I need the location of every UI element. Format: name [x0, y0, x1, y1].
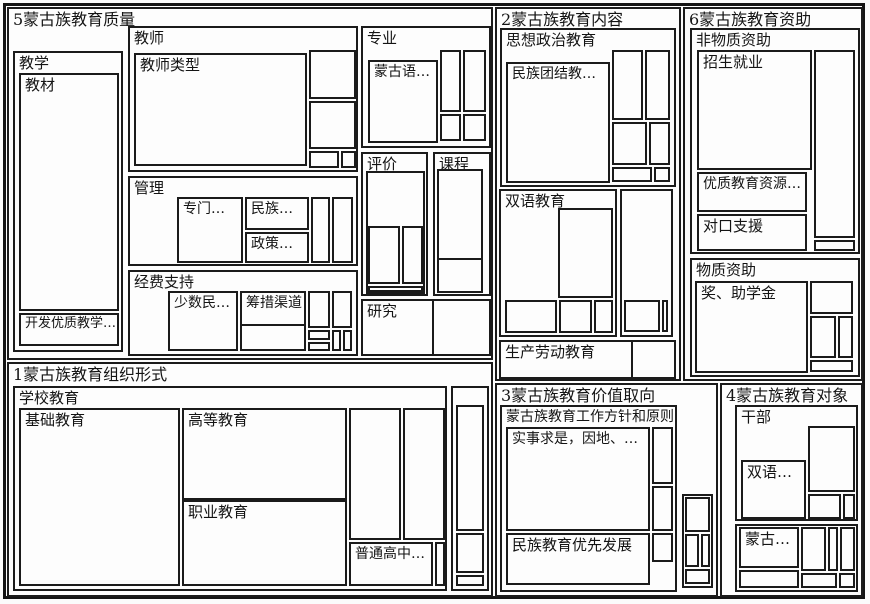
node-scholarship-label: 奖、助学金 — [697, 283, 806, 304]
treemap-cell — [456, 533, 484, 573]
region-6-education-aid: 6蒙古族教育资助 非物质资助 招生就业 优质教育资源… 对口支援 物质资助 奖、… — [683, 7, 863, 381]
treemap-cell — [308, 342, 330, 351]
node-ethnic-unity-label: 民族团结教… — [508, 64, 608, 83]
divider — [242, 324, 304, 326]
treemap-cell — [808, 494, 841, 519]
node-teacher: 教师 教师类型 — [128, 26, 358, 172]
node-curriculum: 课程 — [433, 152, 491, 296]
node-quality-resources-label: 优质教育资源… — [699, 174, 805, 193]
node-funding: 经费支持 少数民… 筹措渠道 — [128, 270, 358, 356]
treemap-cell — [343, 330, 352, 351]
node-policy: 政策… — [245, 232, 309, 263]
treemap-cell — [463, 114, 486, 141]
node-ideology-education: 思想政治教育 民族团结教… — [500, 28, 676, 187]
node-funding-channel-label: 筹措渠道 — [242, 293, 304, 312]
treemap-cell — [463, 50, 486, 112]
node-work-principles: 蒙古族教育工作方针和原则 实事求是，因地、… 民族教育优先发展 — [500, 405, 677, 592]
treemap-cell — [309, 101, 356, 149]
treemap-cell — [558, 208, 613, 298]
node-bilingual-education: 双语教育 — [499, 189, 617, 337]
divider — [439, 258, 481, 260]
node-basic-education-label: 基础教育 — [21, 410, 178, 431]
node-teaching: 教学 教材 开发优质教学… — [13, 51, 123, 352]
treemap-cell — [311, 197, 330, 263]
node-ethnic: 民族… — [245, 197, 309, 230]
node-policy-label: 政策… — [247, 234, 307, 253]
node-labor-education: 生产劳动教育 — [499, 340, 676, 379]
node-develop-teaching-label: 开发优质教学… — [21, 315, 117, 333]
node-higher-education: 高等教育 — [182, 408, 347, 500]
treemap-cell — [652, 533, 673, 562]
node-higher-education-label: 高等教育 — [184, 410, 345, 431]
treemap-figure: 5蒙古族教育质量 教学 教材 开发优质教学… 教师 教师类型 管理 — [0, 0, 870, 604]
node-major-label: 专业 — [363, 28, 489, 49]
node-cadre: 干部 双语… — [735, 405, 858, 521]
node-enrollment-employment-label: 招生就业 — [699, 52, 810, 73]
node-seek-truth: 实事求是，因地、… — [506, 427, 650, 531]
node-teacher-label: 教师 — [130, 28, 356, 49]
treemap-cell — [366, 171, 425, 294]
treemap-cell — [308, 291, 330, 328]
node-mongolian-label: 蒙古… — [741, 529, 797, 550]
node-mongolian-language-label: 蒙古语… — [370, 62, 436, 81]
treemap-cell — [810, 360, 853, 372]
treemap-cell — [685, 534, 699, 567]
node-priority-development: 民族教育优先发展 — [506, 533, 650, 585]
treemap-cell — [505, 300, 557, 333]
node-funding-label: 经费支持 — [130, 272, 356, 293]
treemap-cell — [645, 50, 670, 120]
treemap-cell — [801, 527, 826, 571]
treemap-cell — [649, 122, 670, 165]
treemap-cell — [838, 316, 853, 358]
treemap-cell — [435, 542, 445, 586]
node-priority-development-label: 民族教育优先发展 — [508, 535, 648, 556]
node-ethnic-label: 民族… — [247, 199, 307, 218]
treemap-cell — [451, 386, 489, 591]
treemap-cell — [810, 281, 853, 314]
node-research: 研究 — [361, 299, 491, 356]
treemap-cell — [810, 316, 836, 358]
node-labor-education-label: 生产劳动教育 — [501, 342, 674, 363]
node-major: 专业 蒙古语… — [361, 26, 491, 148]
treemap-cell — [368, 286, 423, 292]
treemap-cell — [814, 50, 855, 238]
node-senior-high-label: 普通高中… — [351, 544, 431, 563]
node-cadre-bilingual: 双语… — [741, 460, 806, 519]
node-ideology-label: 思想政治教育 — [502, 30, 674, 51]
treemap-cell — [808, 426, 855, 492]
treemap-cell — [332, 291, 352, 328]
region-1-organization-form: 1蒙古族教育组织形式 学校教育 基础教育 高等教育 职业教育 普通高中… — [7, 362, 493, 597]
node-nonmaterial-aid-label: 非物质资助 — [692, 30, 858, 51]
node-textbook-label: 教材 — [21, 75, 117, 96]
treemap-cell — [349, 408, 401, 540]
treemap-cell — [309, 50, 356, 99]
region-3-value-orientation: 3蒙古族教育价值取向 蒙古族教育工作方针和原则 实事求是，因地、… 民族教育优先… — [495, 383, 718, 597]
node-mongolian-language: 蒙古语… — [368, 60, 438, 143]
treemap-cell — [341, 151, 356, 168]
treemap-cell — [839, 573, 855, 588]
node-material-aid: 物质资助 奖、助学金 — [690, 258, 860, 377]
node-senior-high: 普通高中… — [349, 542, 433, 586]
node-pairing-support: 对口支援 — [697, 214, 807, 251]
treemap-cell — [652, 486, 673, 531]
node-school-education: 学校教育 基础教育 高等教育 职业教育 普通高中… — [13, 386, 447, 591]
treemap-cell — [739, 570, 799, 588]
node-teaching-label: 教学 — [15, 53, 121, 74]
node-evaluation: 评价 — [361, 152, 428, 296]
treemap-cell — [612, 50, 643, 120]
node-mongolian-group: 蒙古… — [735, 524, 858, 592]
treemap-cell — [801, 573, 837, 588]
node-special: 专门… — [177, 197, 243, 263]
treemap-cell — [309, 151, 339, 168]
node-quality-resources: 优质教育资源… — [697, 172, 807, 212]
node-management-label: 管理 — [130, 178, 356, 199]
divider — [432, 301, 434, 354]
node-work-principles-label: 蒙古族教育工作方针和原则 — [502, 407, 675, 426]
region-5-education-quality: 5蒙古族教育质量 教学 教材 开发优质教学… 教师 教师类型 管理 — [7, 7, 493, 360]
divider — [631, 342, 633, 377]
treemap-cell — [612, 122, 647, 165]
node-research-label: 研究 — [363, 301, 489, 322]
region-3-title: 3蒙古族教育价值取向 — [497, 385, 716, 407]
treemap-cell — [814, 240, 855, 251]
node-basic-education: 基础教育 — [19, 408, 180, 586]
node-teacher-type: 教师类型 — [134, 53, 307, 166]
region-4-education-target: 4蒙古族教育对象 干部 双语… 蒙古… — [720, 383, 863, 597]
treemap-cell — [682, 494, 713, 588]
node-ethnic-unity: 民族团结教… — [506, 62, 610, 183]
node-scholarship: 奖、助学金 — [695, 281, 808, 373]
node-minority-funding: 少数民… — [168, 291, 238, 351]
region-1-title: 1蒙古族教育组织形式 — [9, 364, 491, 386]
node-pairing-support-label: 对口支援 — [699, 216, 805, 237]
treemap-cell — [559, 300, 592, 333]
treemap-cell — [685, 569, 710, 584]
treemap-cell — [701, 534, 710, 567]
treemap-cell — [620, 189, 673, 337]
treemap-cell — [840, 527, 855, 571]
treemap-cell — [368, 226, 400, 284]
node-vocational-education: 职业教育 — [182, 500, 347, 586]
node-textbook: 教材 — [19, 73, 119, 311]
region-2-education-content: 2蒙古族教育内容 思想政治教育 民族团结教… 双语教育 — [495, 7, 681, 381]
treemap-cell — [437, 169, 483, 293]
node-develop-teaching: 开发优质教学… — [19, 313, 119, 346]
treemap-cell — [662, 300, 668, 332]
node-enrollment-employment: 招生就业 — [697, 50, 812, 170]
node-special-label: 专门… — [179, 199, 241, 218]
treemap-cell — [624, 300, 660, 332]
treemap-cell — [402, 226, 423, 284]
node-cadre-bilingual-label: 双语… — [743, 462, 804, 483]
node-school-education-label: 学校教育 — [15, 388, 445, 409]
node-vocational-education-label: 职业教育 — [184, 502, 345, 523]
treemap-cell — [843, 494, 855, 519]
treemap-cell — [403, 408, 445, 540]
node-minority-funding-label: 少数民… — [170, 293, 236, 312]
treemap-cell — [332, 330, 341, 351]
node-seek-truth-label: 实事求是，因地、… — [508, 429, 648, 448]
treemap-cell — [594, 300, 613, 333]
treemap-cell — [654, 167, 670, 182]
treemap-cell — [828, 527, 838, 571]
treemap-cell — [308, 330, 330, 340]
treemap-cell — [456, 575, 484, 586]
node-mongolian: 蒙古… — [739, 527, 799, 568]
treemap-cell — [440, 114, 461, 141]
treemap-cell — [652, 427, 673, 484]
node-cadre-label: 干部 — [737, 407, 856, 428]
node-nonmaterial-aid: 非物质资助 招生就业 优质教育资源… 对口支援 — [690, 28, 860, 254]
node-material-aid-label: 物质资助 — [692, 260, 858, 281]
treemap-cell — [456, 405, 484, 531]
node-management: 管理 专门… 民族… 政策… — [128, 176, 358, 266]
treemap-cell — [685, 497, 710, 532]
region-4-title: 4蒙古族教育对象 — [722, 385, 861, 407]
treemap-cell — [440, 50, 461, 112]
node-teacher-type-label: 教师类型 — [136, 55, 305, 76]
node-funding-channel: 筹措渠道 — [240, 291, 306, 351]
treemap-cell — [612, 167, 652, 182]
treemap-cell — [332, 197, 353, 263]
